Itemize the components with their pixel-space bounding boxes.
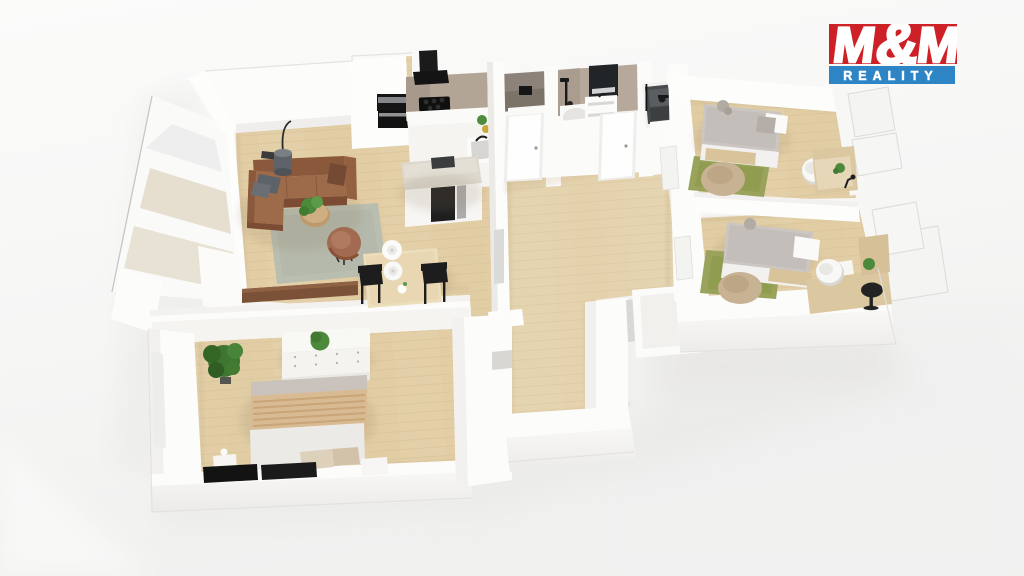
svg-text:REALITY: REALITY — [843, 69, 938, 83]
